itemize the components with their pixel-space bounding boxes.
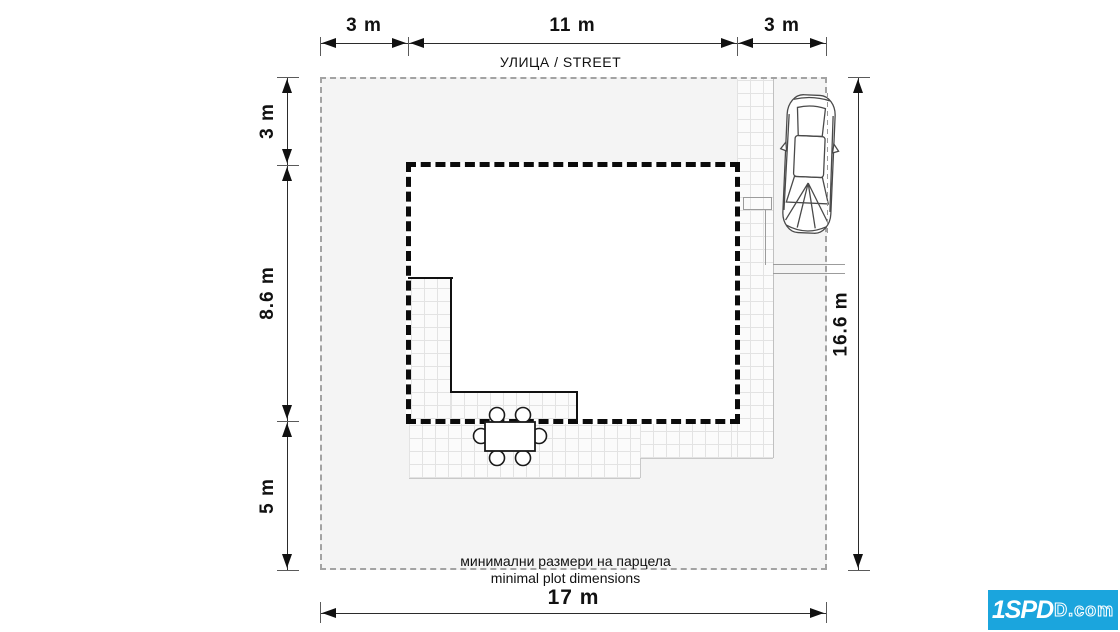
dim-label-top-left: 3 m: [320, 15, 408, 37]
dim-tick: [848, 570, 870, 571]
driveway-hatch: [737, 79, 774, 458]
terrace-step-edge: [640, 458, 641, 478]
dim-arrow: [721, 38, 735, 48]
logo-suffix-text: D.com: [1054, 600, 1114, 621]
dim-label-bottom: 17 m: [320, 586, 827, 610]
logo-link[interactable]: 1SPD D.com: [988, 590, 1118, 630]
house-wall-top: [408, 277, 453, 279]
dim-tick: [826, 37, 827, 56]
house-wall-horizontal: [450, 391, 578, 393]
dim-tick: [320, 37, 321, 56]
dim-tick: [277, 570, 299, 571]
site-plan-canvas: 3 m 11 m 3 m УЛИЦА / STREET 3 m 8.6 m 5 …: [0, 0, 1120, 632]
dim-label-top-middle: 11 m: [408, 15, 737, 37]
caption-english: minimal plot dimensions: [311, 570, 820, 586]
house-outline: [406, 162, 740, 424]
house-wall-right: [576, 391, 578, 421]
logo-brand-text: 1SPD: [992, 596, 1053, 625]
dim-arrow: [410, 38, 424, 48]
dim-label-left-middle: 8.6 m: [257, 266, 279, 320]
dim-label-left-top: 3 m: [257, 103, 279, 139]
entrance-steps: [743, 197, 772, 210]
dim-label-top-right: 3 m: [737, 15, 827, 37]
dim-arrow: [810, 38, 824, 48]
dining-table-icon: [468, 402, 554, 472]
street-label: УЛИЦА / STREET: [396, 54, 725, 70]
path-edge-vertical: [765, 210, 766, 265]
dim-arrow: [739, 38, 753, 48]
patio-hatch-left: [411, 278, 451, 419]
house-wall-vertical: [450, 277, 452, 393]
dim-arrow: [392, 38, 406, 48]
dim-label-right: 16.6 m: [831, 291, 853, 356]
dim-arrow: [322, 38, 336, 48]
dim-tick: [737, 37, 738, 56]
bottom-dimension-line: [320, 613, 827, 614]
dim-label-left-bottom: 5 m: [257, 478, 279, 514]
caption-bulgarian: минимални размери на парцела: [311, 553, 820, 569]
